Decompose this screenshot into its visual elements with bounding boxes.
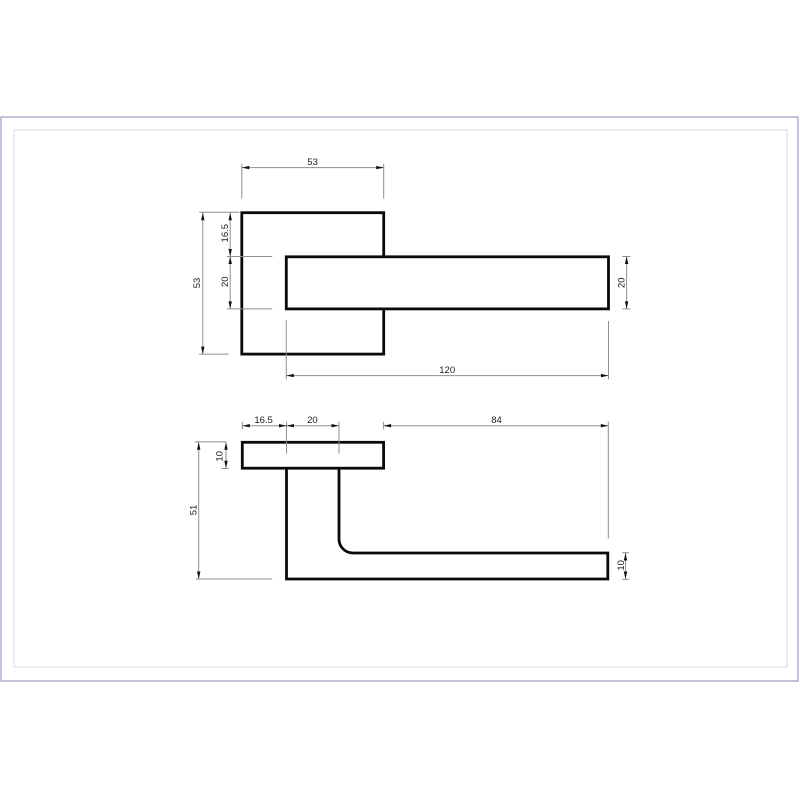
svg-text:53: 53	[307, 157, 318, 168]
svg-text:53: 53	[192, 278, 203, 289]
svg-text:120: 120	[439, 365, 455, 376]
svg-text:20: 20	[220, 276, 231, 287]
svg-text:16.5: 16.5	[220, 224, 231, 243]
svg-text:10: 10	[214, 451, 225, 462]
svg-text:10: 10	[616, 560, 627, 571]
svg-text:20: 20	[307, 415, 318, 426]
svg-text:84: 84	[491, 415, 502, 426]
svg-text:16.5: 16.5	[254, 415, 273, 426]
svg-text:20: 20	[616, 277, 627, 288]
svg-text:51: 51	[189, 505, 200, 516]
